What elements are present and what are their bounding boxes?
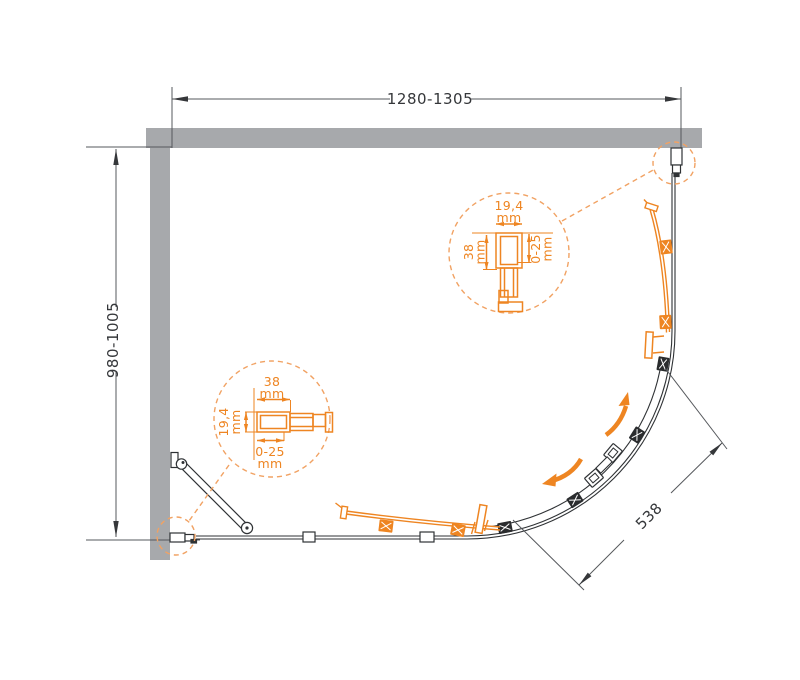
roller-orange-1: [378, 519, 393, 533]
detail-tr-adjust-unit: mm: [540, 237, 555, 262]
roller-orange-2: [450, 523, 466, 537]
width-dim-arrow-right: [665, 96, 681, 101]
detail-tr-width-unit: mm: [497, 210, 522, 225]
sliding-door-right: [644, 200, 670, 354]
detail-tr-depth-unit: mm: [473, 240, 488, 265]
shower-enclosure-plan-drawing: 1280-1305 980-1005: [0, 0, 800, 680]
roller-orange-4: [659, 315, 672, 330]
slide-arrow-down-icon: [542, 459, 581, 487]
slide-arrow-up-icon: [606, 392, 630, 435]
detail-leader-top-right: [562, 169, 655, 221]
roller-bracket: [596, 457, 612, 473]
left-wall: [150, 128, 170, 560]
panel-connector-left: [303, 532, 315, 542]
roller-orange-3: [659, 239, 673, 254]
width-dimension-label: 1280-1305: [387, 90, 473, 108]
wall-profile-bottom-left: [170, 533, 197, 543]
door-end-cap-right: [645, 202, 658, 211]
top-wall: [146, 128, 702, 148]
detail-profile-bottom-left: 38 mm 19,4 mm 0-25 mm: [216, 374, 333, 471]
roller-black-2: [566, 492, 584, 509]
depth-dim-arrow-bottom: [113, 521, 118, 537]
door-handle-right: [645, 332, 653, 358]
depth-dimension-label: 980-1005: [104, 302, 122, 378]
radius-dimension-label: 538: [632, 499, 666, 533]
radius-dim-arrow-bottom: [579, 573, 591, 585]
detail-bl-width-unit: mm: [260, 386, 285, 401]
panel-connector-right: [420, 532, 434, 542]
support-bar: [171, 453, 253, 534]
detail-bl-adjust-unit: mm: [258, 456, 283, 471]
technical-drawing-canvas: 1280-1305 980-1005: [0, 0, 800, 680]
fixed-glass-and-track: [196, 173, 675, 539]
door-end-cap-bottom: [340, 506, 347, 519]
support-bar-wall-pivot: [176, 459, 186, 469]
detail-callouts: [157, 142, 695, 555]
roller-black-4: [656, 356, 669, 372]
depth-dim-arrow-top: [113, 149, 118, 165]
width-dim-arrow-left: [172, 96, 188, 101]
detail-profile-top-right: 19,4 mm 38 mm 0-25 mm: [461, 198, 555, 312]
wall-profile-top-right: [671, 148, 682, 177]
radius-dimension: [513, 368, 727, 590]
radius-dim-arrow-top: [710, 443, 723, 455]
detail-bl-depth-unit: mm: [228, 410, 243, 435]
